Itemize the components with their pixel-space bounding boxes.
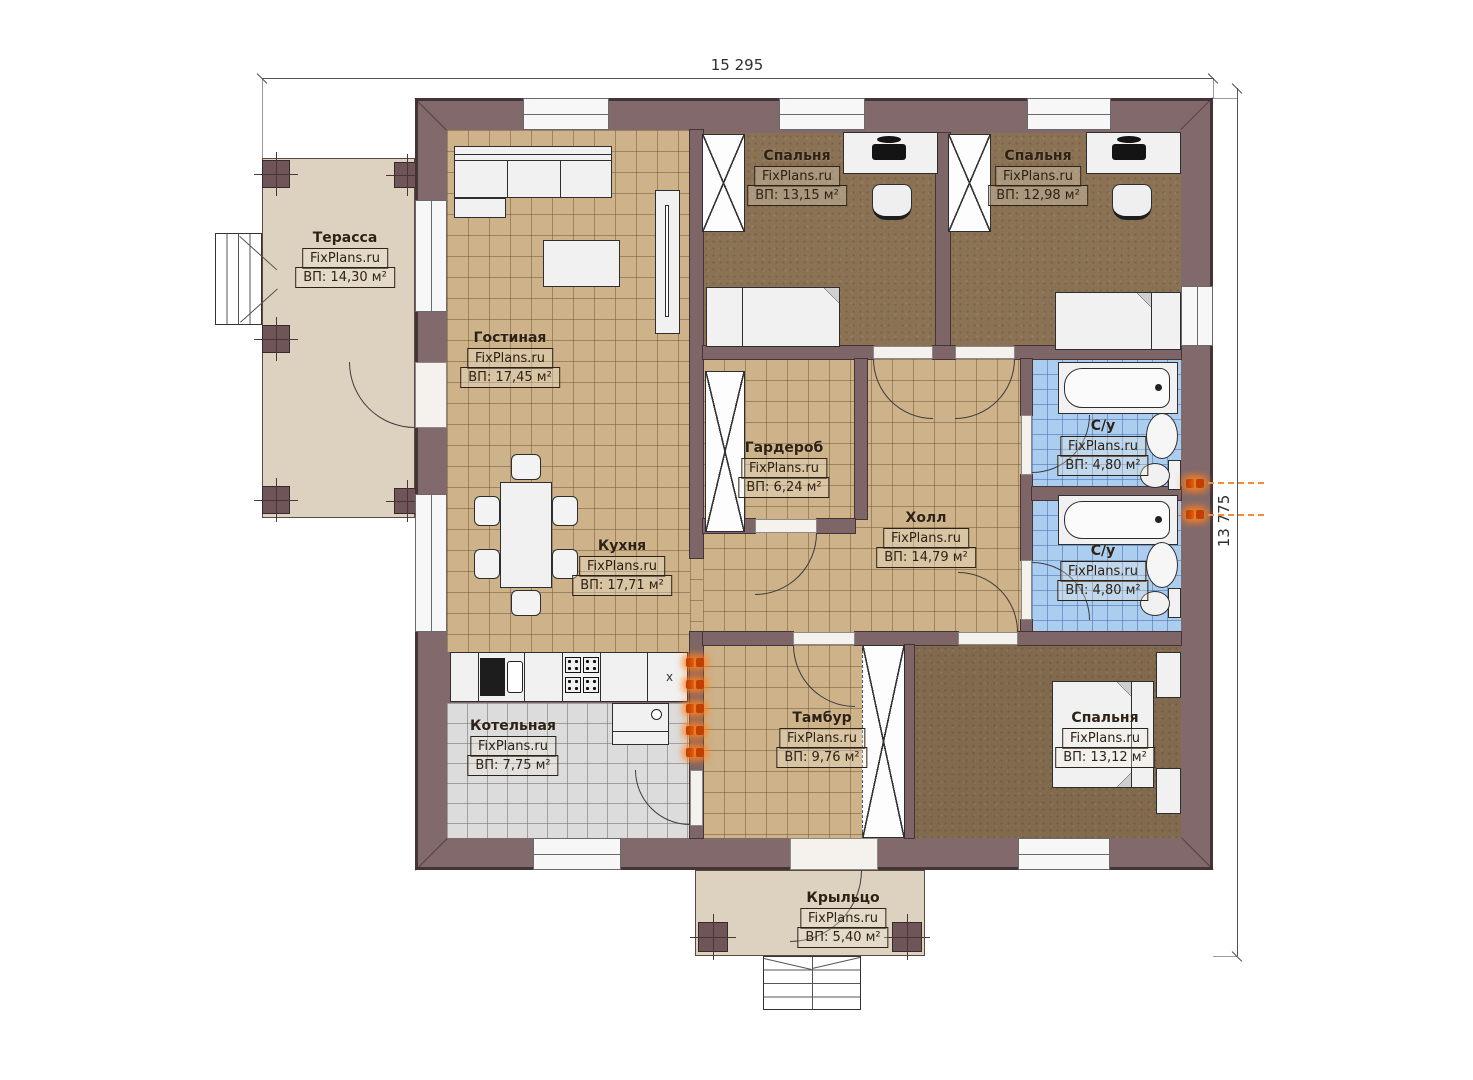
window-bedroom1-top xyxy=(779,98,865,130)
wardrobe-cabinet xyxy=(948,134,991,232)
blanket-fold xyxy=(824,288,839,303)
room-label-terrace: Терасса FixPlans.ru ВП: 14,30 м² xyxy=(295,230,395,288)
room-label-kitchen: Кухня FixPlans.ru ВП: 17,71 м² xyxy=(572,538,672,596)
radiator xyxy=(696,704,704,713)
dimension-line-right xyxy=(1237,88,1238,956)
radiator-pipe xyxy=(1208,514,1264,516)
radiator xyxy=(1196,510,1204,519)
porch-steps xyxy=(763,956,861,1010)
watermark: FixPlans.ru xyxy=(741,458,827,479)
radiator xyxy=(686,680,694,689)
door-bath2 xyxy=(1021,560,1032,620)
watermark: FixPlans.ru xyxy=(800,908,886,929)
watermark: FixPlans.ru xyxy=(467,348,553,369)
room-area: ВП: 4,80 м² xyxy=(1057,455,1148,476)
room-area: ВП: 7,75 м² xyxy=(467,755,558,776)
bed-single xyxy=(1055,292,1181,350)
room-name: С/у xyxy=(1091,543,1116,559)
wall-hall-bottom xyxy=(855,632,958,645)
room-name: Котельная xyxy=(470,718,556,734)
coffee-table xyxy=(543,240,620,287)
room-area: ВП: 4,80 м² xyxy=(1057,580,1148,601)
sink-bowl xyxy=(507,661,523,693)
room-label-bath2: С/у FixPlans.ru ВП: 4,80 м² xyxy=(1057,543,1148,601)
radiator xyxy=(696,658,704,667)
radiator xyxy=(696,680,704,689)
kitchen-counter: x xyxy=(450,652,688,702)
sink xyxy=(1146,542,1178,588)
radiator xyxy=(686,704,694,713)
radiator xyxy=(1186,479,1194,488)
sofa-chaise xyxy=(454,198,506,218)
room-label-boiler: Котельная FixPlans.ru ВП: 7,75 м² xyxy=(467,718,558,776)
boiler-unit xyxy=(612,703,669,745)
dining-chair xyxy=(511,454,541,480)
dimension-width-label: 15 295 xyxy=(711,56,764,74)
wall-bath-left xyxy=(1021,359,1032,415)
wall-bath-left xyxy=(1021,475,1032,560)
room-label-vestibule: Тамбур FixPlans.ru ВП: 9,76 м² xyxy=(776,710,867,768)
blanket-fold xyxy=(1117,773,1131,787)
bathtub xyxy=(1058,362,1178,414)
sink-drainer xyxy=(480,658,505,696)
door-entrance xyxy=(790,838,878,870)
door-boiler xyxy=(690,770,703,826)
radiator xyxy=(686,748,694,757)
wall-wardrobe-bottom xyxy=(817,519,855,533)
watermark: FixPlans.ru xyxy=(302,248,388,269)
wall-hall-bottom xyxy=(1018,632,1181,645)
floor-plan: 15 295 13 775 xyxy=(0,0,1473,1080)
stove-burner xyxy=(565,677,581,693)
bathtub-drain xyxy=(1155,516,1162,523)
watermark: FixPlans.ru xyxy=(1060,561,1146,582)
room-name: Спальня xyxy=(763,148,830,164)
door-hall-bedroom3 xyxy=(958,632,1018,645)
computer-icon xyxy=(872,144,906,160)
room-area: ВП: 14,30 м² xyxy=(295,267,395,288)
computer-icon xyxy=(1112,144,1146,160)
door-hall-vestibule xyxy=(793,632,855,645)
extension-line-top-left xyxy=(262,78,263,158)
counter-divider xyxy=(562,653,563,701)
porch-column xyxy=(892,922,922,952)
vestibule-closet xyxy=(862,645,905,838)
window-living-top xyxy=(523,98,609,130)
room-area: ВП: 6,24 м² xyxy=(738,477,829,498)
room-name: С/у xyxy=(1091,418,1116,434)
window-living-left xyxy=(415,200,447,312)
watermark: FixPlans.ru xyxy=(1062,728,1148,749)
room-area: ВП: 13,15 м² xyxy=(747,185,847,206)
room-label-bedroom1: Спальня FixPlans.ru ВП: 13,15 м² xyxy=(747,148,847,206)
terrace-column xyxy=(262,160,290,188)
wall-bedrooms-hall xyxy=(933,346,955,359)
wall-closet-bedroom3 xyxy=(905,645,914,838)
blanket-fold xyxy=(1137,293,1151,307)
stove-burner xyxy=(583,657,599,673)
room-label-bath1: С/у FixPlans.ru ВП: 4,80 м² xyxy=(1057,418,1148,476)
watermark: FixPlans.ru xyxy=(883,528,969,549)
terrace-stairs xyxy=(215,233,262,325)
radiator xyxy=(1186,510,1194,519)
dimension-line-top xyxy=(262,78,1213,79)
room-name: Кухня xyxy=(598,538,646,554)
room-area: ВП: 17,71 м² xyxy=(572,575,672,596)
room-name: Крыльцо xyxy=(806,890,879,906)
door-wardrobe xyxy=(755,519,817,533)
radiator xyxy=(696,726,704,735)
room-name: Холл xyxy=(906,510,947,526)
wardrobe-cabinet xyxy=(702,134,745,232)
bed-single xyxy=(706,287,840,347)
radiator xyxy=(1196,479,1204,488)
kitchen-hall-opening-floor xyxy=(690,558,703,632)
tv xyxy=(665,205,669,317)
room-label-living: Гостиная FixPlans.ru ВП: 17,45 м² xyxy=(460,330,560,388)
room-name: Гостиная xyxy=(474,330,547,346)
counter-divider xyxy=(600,653,601,701)
watermark: FixPlans.ru xyxy=(995,166,1081,187)
dining-chair xyxy=(511,590,541,616)
room-area: ВП: 13,12 м² xyxy=(1055,747,1155,768)
room-label-bedroom3: Спальня FixPlans.ru ВП: 13,12 м² xyxy=(1055,710,1155,768)
room-area: ВП: 17,45 м² xyxy=(460,367,560,388)
door-terrace-living xyxy=(415,362,447,428)
boiler-line xyxy=(613,731,668,732)
room-name: Терасса xyxy=(313,230,378,246)
watermark: FixPlans.ru xyxy=(579,556,665,577)
window-bedroom2-right xyxy=(1181,286,1213,346)
watermark: FixPlans.ru xyxy=(470,736,556,757)
door-bath1 xyxy=(1021,415,1032,475)
window-kitchen-left xyxy=(415,494,447,632)
counter-divider xyxy=(647,653,648,701)
radiator xyxy=(696,748,704,757)
radiator-pipe xyxy=(1208,482,1264,484)
extension-line-right-bottom xyxy=(1213,956,1237,957)
room-area: ВП: 12,98 м² xyxy=(988,185,1088,206)
watermark: FixPlans.ru xyxy=(754,166,840,187)
office-chair xyxy=(872,184,912,220)
radiator xyxy=(686,726,694,735)
wall-wardrobe-right xyxy=(855,359,867,519)
sink xyxy=(1146,413,1178,459)
dining-chair xyxy=(474,496,500,526)
bathtub-drain xyxy=(1155,384,1162,391)
dimension-height-label: 13 775 xyxy=(1215,491,1233,551)
stove-burner xyxy=(583,677,599,693)
window-bedroom2-top xyxy=(1027,98,1111,130)
watermark: FixPlans.ru xyxy=(779,728,865,749)
sofa xyxy=(454,146,612,198)
door-bedroom2 xyxy=(955,346,1015,359)
room-area: ВП: 5,40 м² xyxy=(797,927,888,948)
door-bedroom1 xyxy=(873,346,933,359)
window-bedroom3-bottom xyxy=(1018,838,1110,870)
room-area: ВП: 14,79 м² xyxy=(876,547,976,568)
room-label-bedroom2: Спальня FixPlans.ru ВП: 12,98 м² xyxy=(988,148,1088,206)
terrace-column xyxy=(262,325,290,353)
wall-hall-bottom xyxy=(703,632,793,645)
stove-burner xyxy=(565,657,581,673)
porch-column xyxy=(698,922,728,952)
room-name: Тамбур xyxy=(792,710,851,726)
office-chair xyxy=(1112,184,1152,220)
room-label-porch: Крыльцо FixPlans.ru ВП: 5,40 м² xyxy=(797,890,888,948)
nightstand xyxy=(1156,652,1181,698)
radiator xyxy=(686,658,694,667)
room-name: Спальня xyxy=(1004,148,1071,164)
step-diagonal xyxy=(764,958,812,970)
window-boiler-bottom xyxy=(533,838,621,870)
wall-bedrooms-hall xyxy=(703,346,873,359)
room-label-hall: Холл FixPlans.ru ВП: 14,79 м² xyxy=(876,510,976,568)
nightstand xyxy=(1156,768,1181,814)
wall-bath-left xyxy=(1021,620,1032,632)
room-name: Гардероб xyxy=(745,440,824,456)
tv-cabinet xyxy=(655,190,680,334)
dining-table xyxy=(500,482,552,588)
dining-chair xyxy=(552,496,578,526)
room-name: Спальня xyxy=(1071,710,1138,726)
step-diagonal xyxy=(812,957,860,969)
counter-divider xyxy=(524,653,525,701)
terrace-column xyxy=(262,486,290,514)
bathtub xyxy=(1058,495,1178,545)
counter-divider xyxy=(478,653,479,701)
room-area: ВП: 9,76 м² xyxy=(776,747,867,768)
blanket-fold xyxy=(1117,682,1131,696)
watermark: FixPlans.ru xyxy=(1060,436,1146,457)
room-label-wardrobe: Гардероб FixPlans.ru ВП: 6,24 м² xyxy=(738,440,829,498)
boiler-dial xyxy=(651,709,662,720)
dining-chair xyxy=(474,549,500,579)
extension-line-right-top xyxy=(1213,98,1237,99)
fridge-unit: x xyxy=(650,653,689,701)
